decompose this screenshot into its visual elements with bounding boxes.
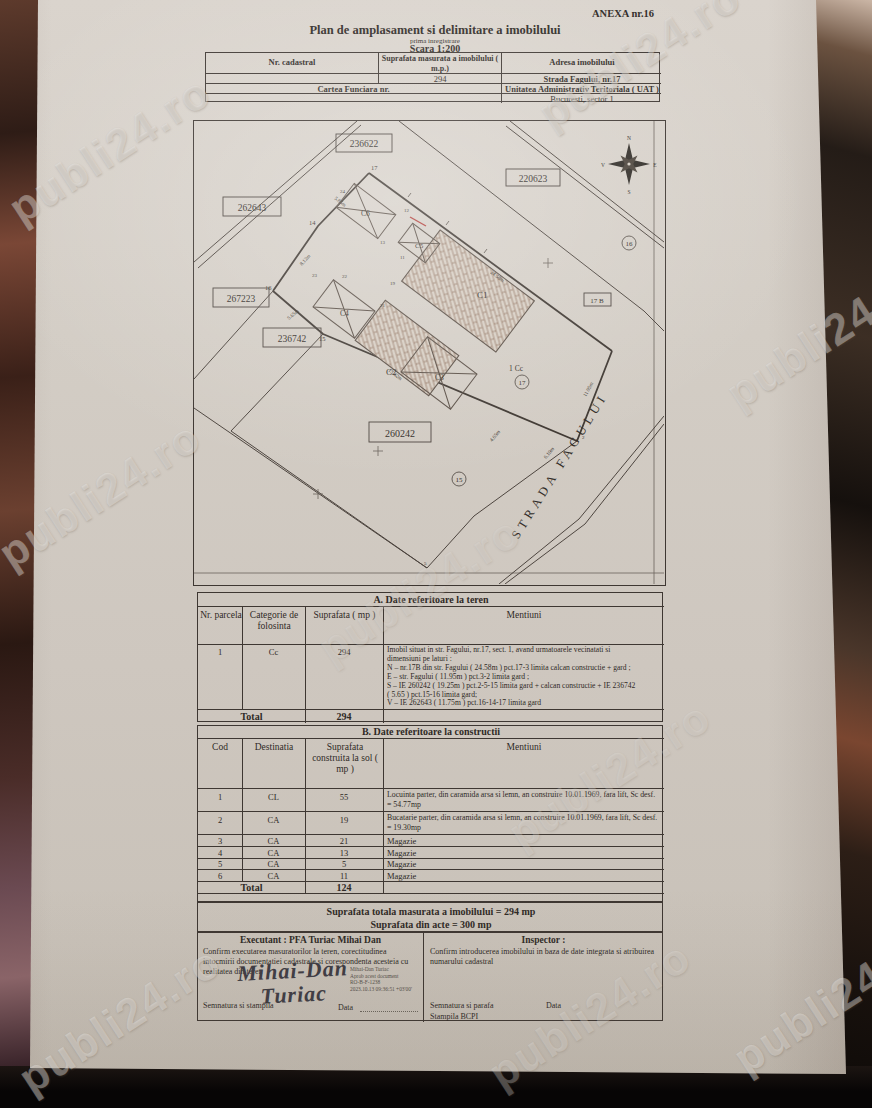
table-b-r3-men: Magazie [387, 836, 416, 846]
point-num: 19 [390, 281, 396, 286]
uat-value: Bucuresti, sector 1 [503, 94, 661, 104]
street-name-label: STRADA FAGULUI [509, 390, 611, 541]
table-b-title: B. Date referitoare la constructii [198, 726, 664, 738]
digital-sig-line: 2023.10.13 09:36:51 +03'00' [350, 986, 420, 993]
building-c5-label: C5 [415, 242, 424, 250]
red-point-16: 16 [265, 284, 272, 291]
building-c6-label: C6 [361, 209, 370, 218]
table-a-col-nr: Nr. parcela [200, 610, 242, 621]
circled-15: 15 [456, 476, 464, 484]
point-num: 13 [380, 240, 386, 245]
table-b-r4-dest: CA [242, 848, 305, 858]
signature-box: Executant : PFA Turiac Mihai Dan Confirm… [197, 932, 663, 1021]
executant-title: Executant : PFA Turiac Mihai Dan [198, 935, 423, 946]
table-b-r2-dest: CA [242, 815, 305, 825]
table-a-col-suprafata: Suprafata ( mp ) [307, 610, 382, 621]
compass-s: S [627, 189, 630, 195]
table-b-r5-men: Magazie [387, 859, 416, 869]
header-table: Nr. cadastral Suprafata masurata a imobi… [205, 52, 660, 102]
table-a-col-mentiuni: Mentiuni [385, 610, 663, 621]
table-b-r5-sup: 5 [305, 859, 383, 869]
table-b-r1-dest: CL [242, 792, 305, 802]
data-dotted-line [360, 1003, 418, 1012]
table-b-r4-men: Magazie [387, 848, 416, 858]
adresa-value: Strada Fagului, nr.17 [503, 74, 661, 84]
uat-label: Unitatea Administrativ Teritoriala ( UAT… [503, 84, 661, 94]
circled-17: 17 [519, 379, 527, 387]
table-b-total-label: Total [198, 882, 305, 894]
parcel-260242: 260242 [385, 428, 415, 439]
table-a-row-categorie: Cc [242, 647, 305, 657]
table-b-total-value: 124 [305, 882, 383, 894]
table-a-total-value: 294 [305, 711, 383, 723]
site-plan-drawing: C1 C2 C3 C4 C5 C6 [194, 121, 664, 584]
inspector-title: Inspector : [423, 935, 664, 946]
suprafata-header: Suprafata masurata a imobilului ( m.p.) [380, 54, 500, 74]
paper-sheet: ANEXA nr.16 Plan de amplasament si delim… [0, 0, 872, 1108]
table-b-r3-cod: 3 [198, 836, 242, 846]
point-num: 12 [404, 208, 410, 213]
adresa-header: Adresa imobilului [503, 57, 661, 67]
table-b-r6-men: Magazie [387, 871, 416, 881]
circled-16: 16 [626, 240, 634, 248]
annex-label: ANEXA nr.16 [592, 8, 654, 19]
table-b-col-cod: Cod [198, 742, 242, 753]
point-num: 22 [342, 274, 348, 279]
table-b-r1-cod: 1 [198, 792, 242, 802]
dim-label: 6.10m [542, 446, 555, 460]
inspector-data-label: Data [546, 1001, 561, 1011]
table-b-r1-men: Locuinta parter, din caramida arsa si le… [387, 790, 659, 810]
building-c4-label: C4 [340, 309, 349, 318]
dim-label: 11.95m [582, 381, 595, 398]
executant-data-label: Data [338, 1003, 353, 1013]
point-num: 21 [380, 303, 386, 308]
table-b-col-mentiuni: Mentiuni [385, 742, 663, 753]
digital-sig-line: RO-B-F-1238 [350, 979, 420, 986]
cadastral-plan-photo: { "annex": "ANEXA nr.16", "watermark": "… [0, 0, 872, 1108]
point-num: 5 [424, 561, 427, 566]
table-b-r3-sup: 21 [305, 836, 383, 846]
mentiuni-line: V – IE 262643 ( 11.75m ) pct.16-14-17 li… [387, 699, 663, 708]
dim-label: 4.65m [488, 429, 501, 443]
building-c6: C6 [336, 183, 396, 238]
table-a-teren: A. Date referitoare la teren Nr. parcela… [197, 592, 663, 722]
table-a-total-label: Total [198, 711, 305, 723]
summary-total-masurata: Suprafata totala masurata a imobilului =… [198, 906, 664, 918]
digital-sig-line: Aprob acest document [350, 973, 420, 980]
point-num: 23 [312, 273, 318, 278]
red-point-14: 14 [309, 219, 316, 226]
cc-parcel-label: 1 Cc [509, 364, 524, 373]
dim-label: 8.12m [298, 253, 311, 267]
building-c3-label: C3 [435, 373, 444, 382]
point-num: 24 [340, 189, 346, 194]
table-b-r5-dest: CA [242, 859, 305, 869]
table-b-r3-dest: CA [242, 836, 305, 846]
summary-box: Suprafata totala masurata a imobilului =… [197, 902, 663, 932]
parcel-236742: 236742 [278, 334, 307, 344]
table-b-r6-cod: 6 [198, 871, 242, 881]
semnatura-stampila-label: Semnatura si stampila [203, 1001, 274, 1011]
compass-v: V [601, 162, 605, 168]
dim-label: 5.65m [286, 308, 300, 321]
table-b-col-suprafata: Suprafata construita la sol ( mp ) [310, 742, 380, 775]
table-b-constructii: B. Date referitoare la constructii Cod D… [197, 725, 663, 902]
site-plan-map: C1 C2 C3 C4 C5 C6 [193, 120, 666, 586]
red-point-15: 15 [319, 335, 326, 342]
parcel-220623: 220623 [519, 174, 548, 184]
neighbor-17b-label: 17 B [590, 297, 604, 305]
summary-din-acte: Suprafata din acte = 300 mp [198, 919, 664, 931]
table-a-row-suprafata: 294 [305, 647, 383, 657]
suprafata-value: 294 [380, 74, 500, 84]
point-num: 11 [400, 255, 405, 260]
document-title: Plan de amplasament si delimitare a imob… [200, 23, 670, 38]
nr-cadastral-header: Nr. cadastral [206, 57, 378, 67]
table-a-col-categorie: Categorie de folosinta [244, 610, 304, 632]
compass-e: E [653, 162, 657, 168]
compass-rose-icon: N E S V [601, 135, 657, 195]
stampila-bcpi-label: Stampila BCPI [430, 1012, 478, 1022]
parcel-236622: 236622 [350, 139, 379, 149]
table-b-r2-cod: 2 [198, 815, 242, 825]
table-b-r1-sup: 55 [305, 792, 383, 802]
digital-sig-line: Mihai-Dan Turiac [350, 966, 420, 973]
parcel-262643: 262643 [238, 203, 267, 213]
red-boundary-segment [410, 217, 426, 226]
red-point-17: 17 [371, 164, 378, 171]
table-b-r2-men: Bucatarie parter, din caramida arsa si l… [387, 813, 659, 833]
table-b-r2-sup: 19 [305, 815, 383, 825]
compass-n: N [627, 135, 631, 141]
building-c1-label: C1 [477, 290, 488, 300]
table-a-title: A. Date referitoare la teren [198, 594, 664, 606]
carte-funciara-label: Cartea Funciara nr. [206, 84, 501, 94]
semnatura-parafa-label: Semnatura si parafa [430, 1001, 494, 1011]
table-b-r5-cod: 5 [198, 859, 242, 869]
parcel-267223: 267223 [227, 294, 256, 304]
table-b-r6-dest: CA [242, 871, 305, 881]
table-b-r4-cod: 4 [198, 848, 242, 858]
inspector-statement: Confirm introducerea imobilului in baza … [430, 947, 656, 967]
table-b-r4-sup: 13 [305, 848, 383, 858]
table-a-mentiuni: Imobil situat in str. Fagului, nr.17, se… [387, 646, 663, 708]
digital-signature-block: Mihai-Dan Turiac Aprob acest document RO… [350, 966, 420, 992]
table-a-row-nr: 1 [198, 647, 242, 657]
table-b-col-destinatia: Destinatia [244, 742, 304, 753]
table-b-r6-sup: 11 [305, 871, 383, 881]
